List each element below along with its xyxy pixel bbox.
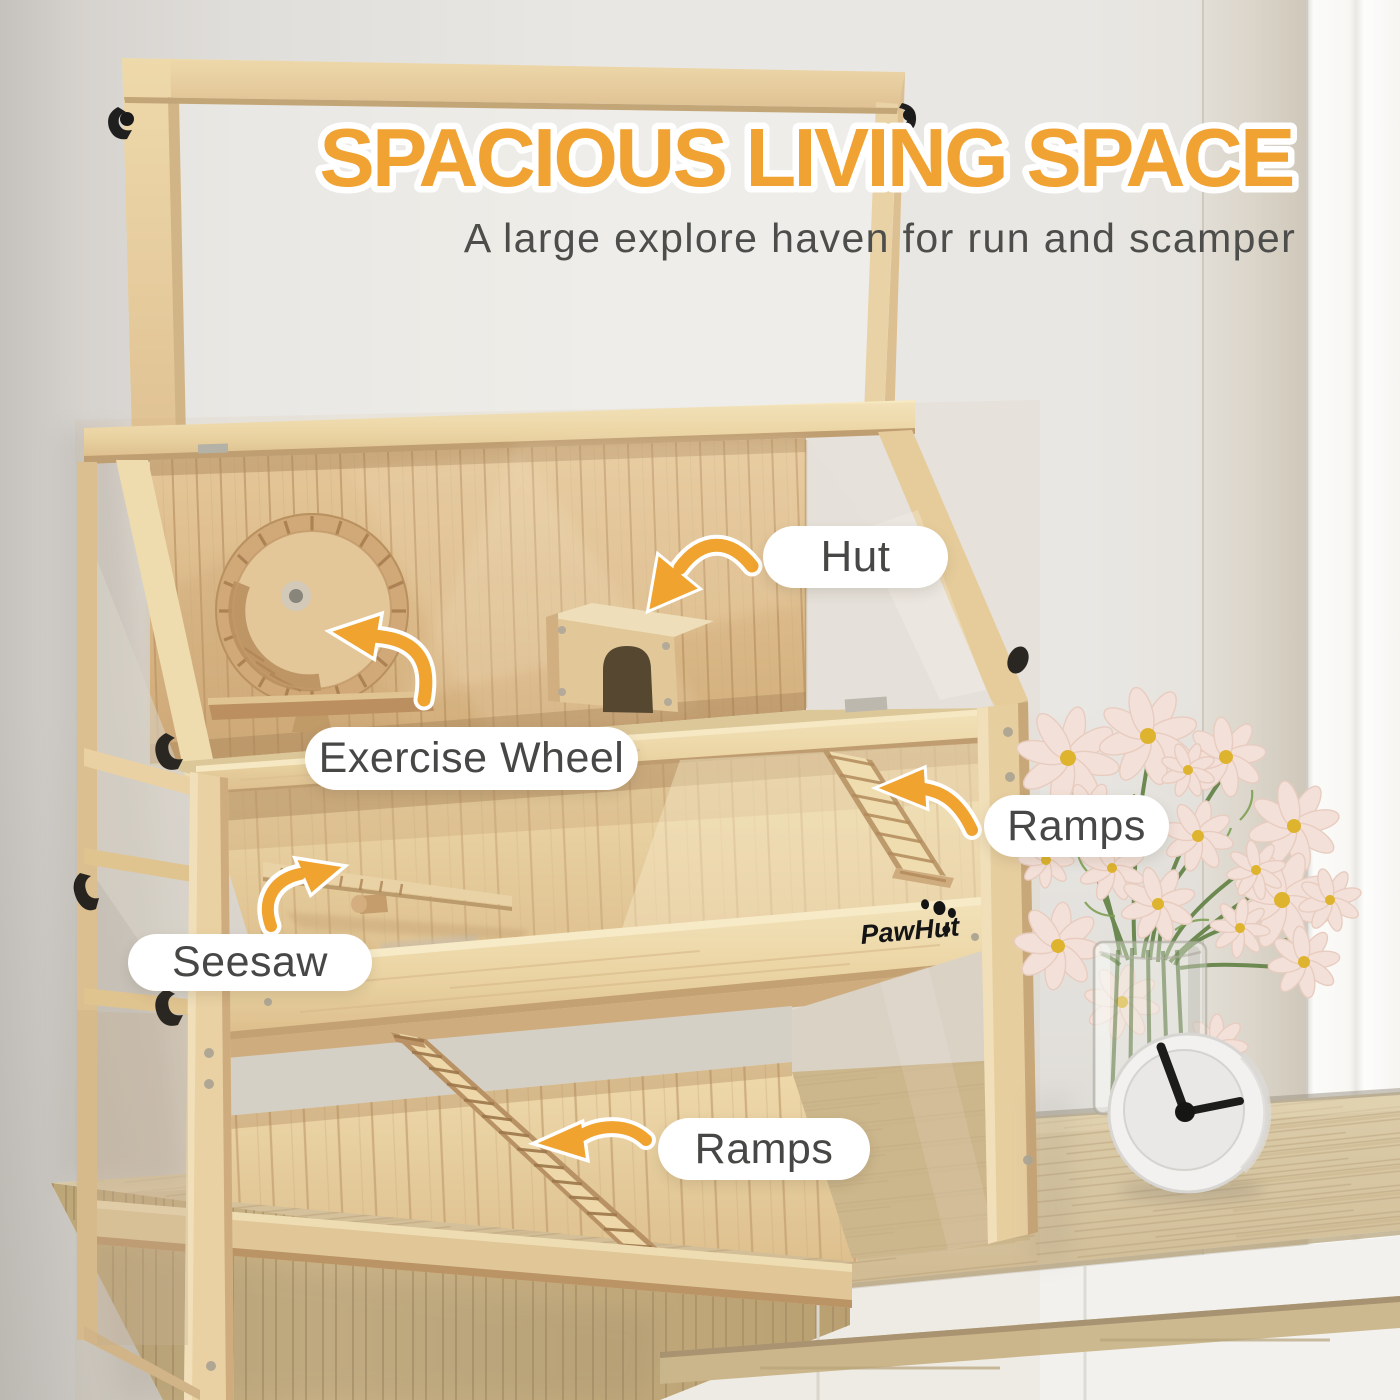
svg-text:A large explore haven for run: A large explore haven for run and scampe… (464, 215, 1296, 261)
svg-text:SPACIOUS LIVING SPACE: SPACIOUS LIVING SPACE (319, 111, 1293, 204)
